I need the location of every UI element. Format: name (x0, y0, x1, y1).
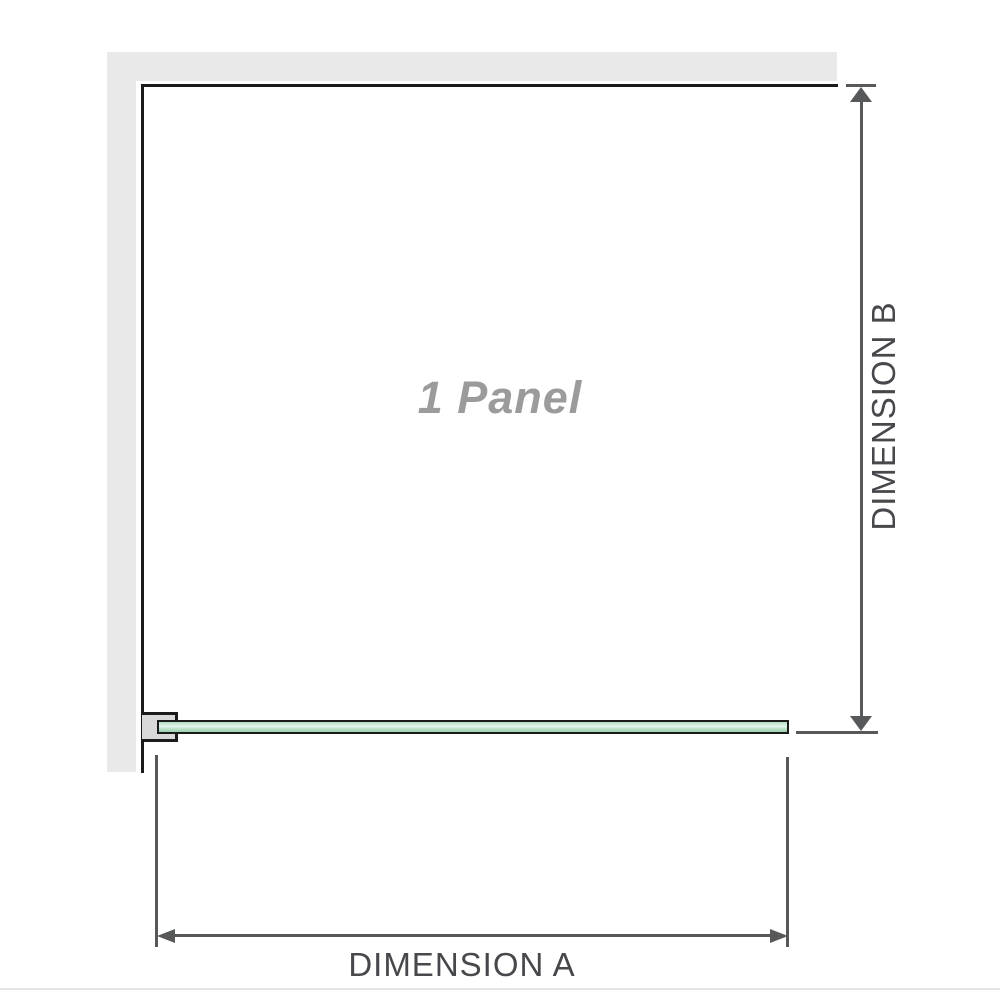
wall-top (107, 52, 837, 81)
arrow-right-icon (770, 929, 788, 943)
arrow-left-icon (157, 929, 175, 943)
enclosure-left-edge-line (141, 84, 144, 773)
page-bottom-divider (0, 988, 1000, 990)
dimension-b-bottom-tick (796, 731, 878, 734)
wall-left (107, 52, 136, 772)
enclosure-top-edge-line (141, 84, 838, 87)
panel-count-label: 1 Panel (418, 372, 583, 424)
dimension-a-right-extension-line (786, 757, 789, 947)
dimension-a-left-extension-line (155, 755, 158, 947)
glass-panel (157, 720, 789, 734)
dimension-a-label: DIMENSION A (348, 946, 575, 984)
dimension-a-line (172, 934, 773, 937)
shower-panel-dimension-diagram: 1 Panel DIMENSION B DIMENSION A (0, 0, 1000, 1000)
arrow-up-icon (850, 87, 872, 102)
dimension-b-line (860, 96, 863, 722)
dimension-b-label: DIMENSION B (865, 301, 903, 530)
arrow-down-icon (850, 716, 872, 731)
